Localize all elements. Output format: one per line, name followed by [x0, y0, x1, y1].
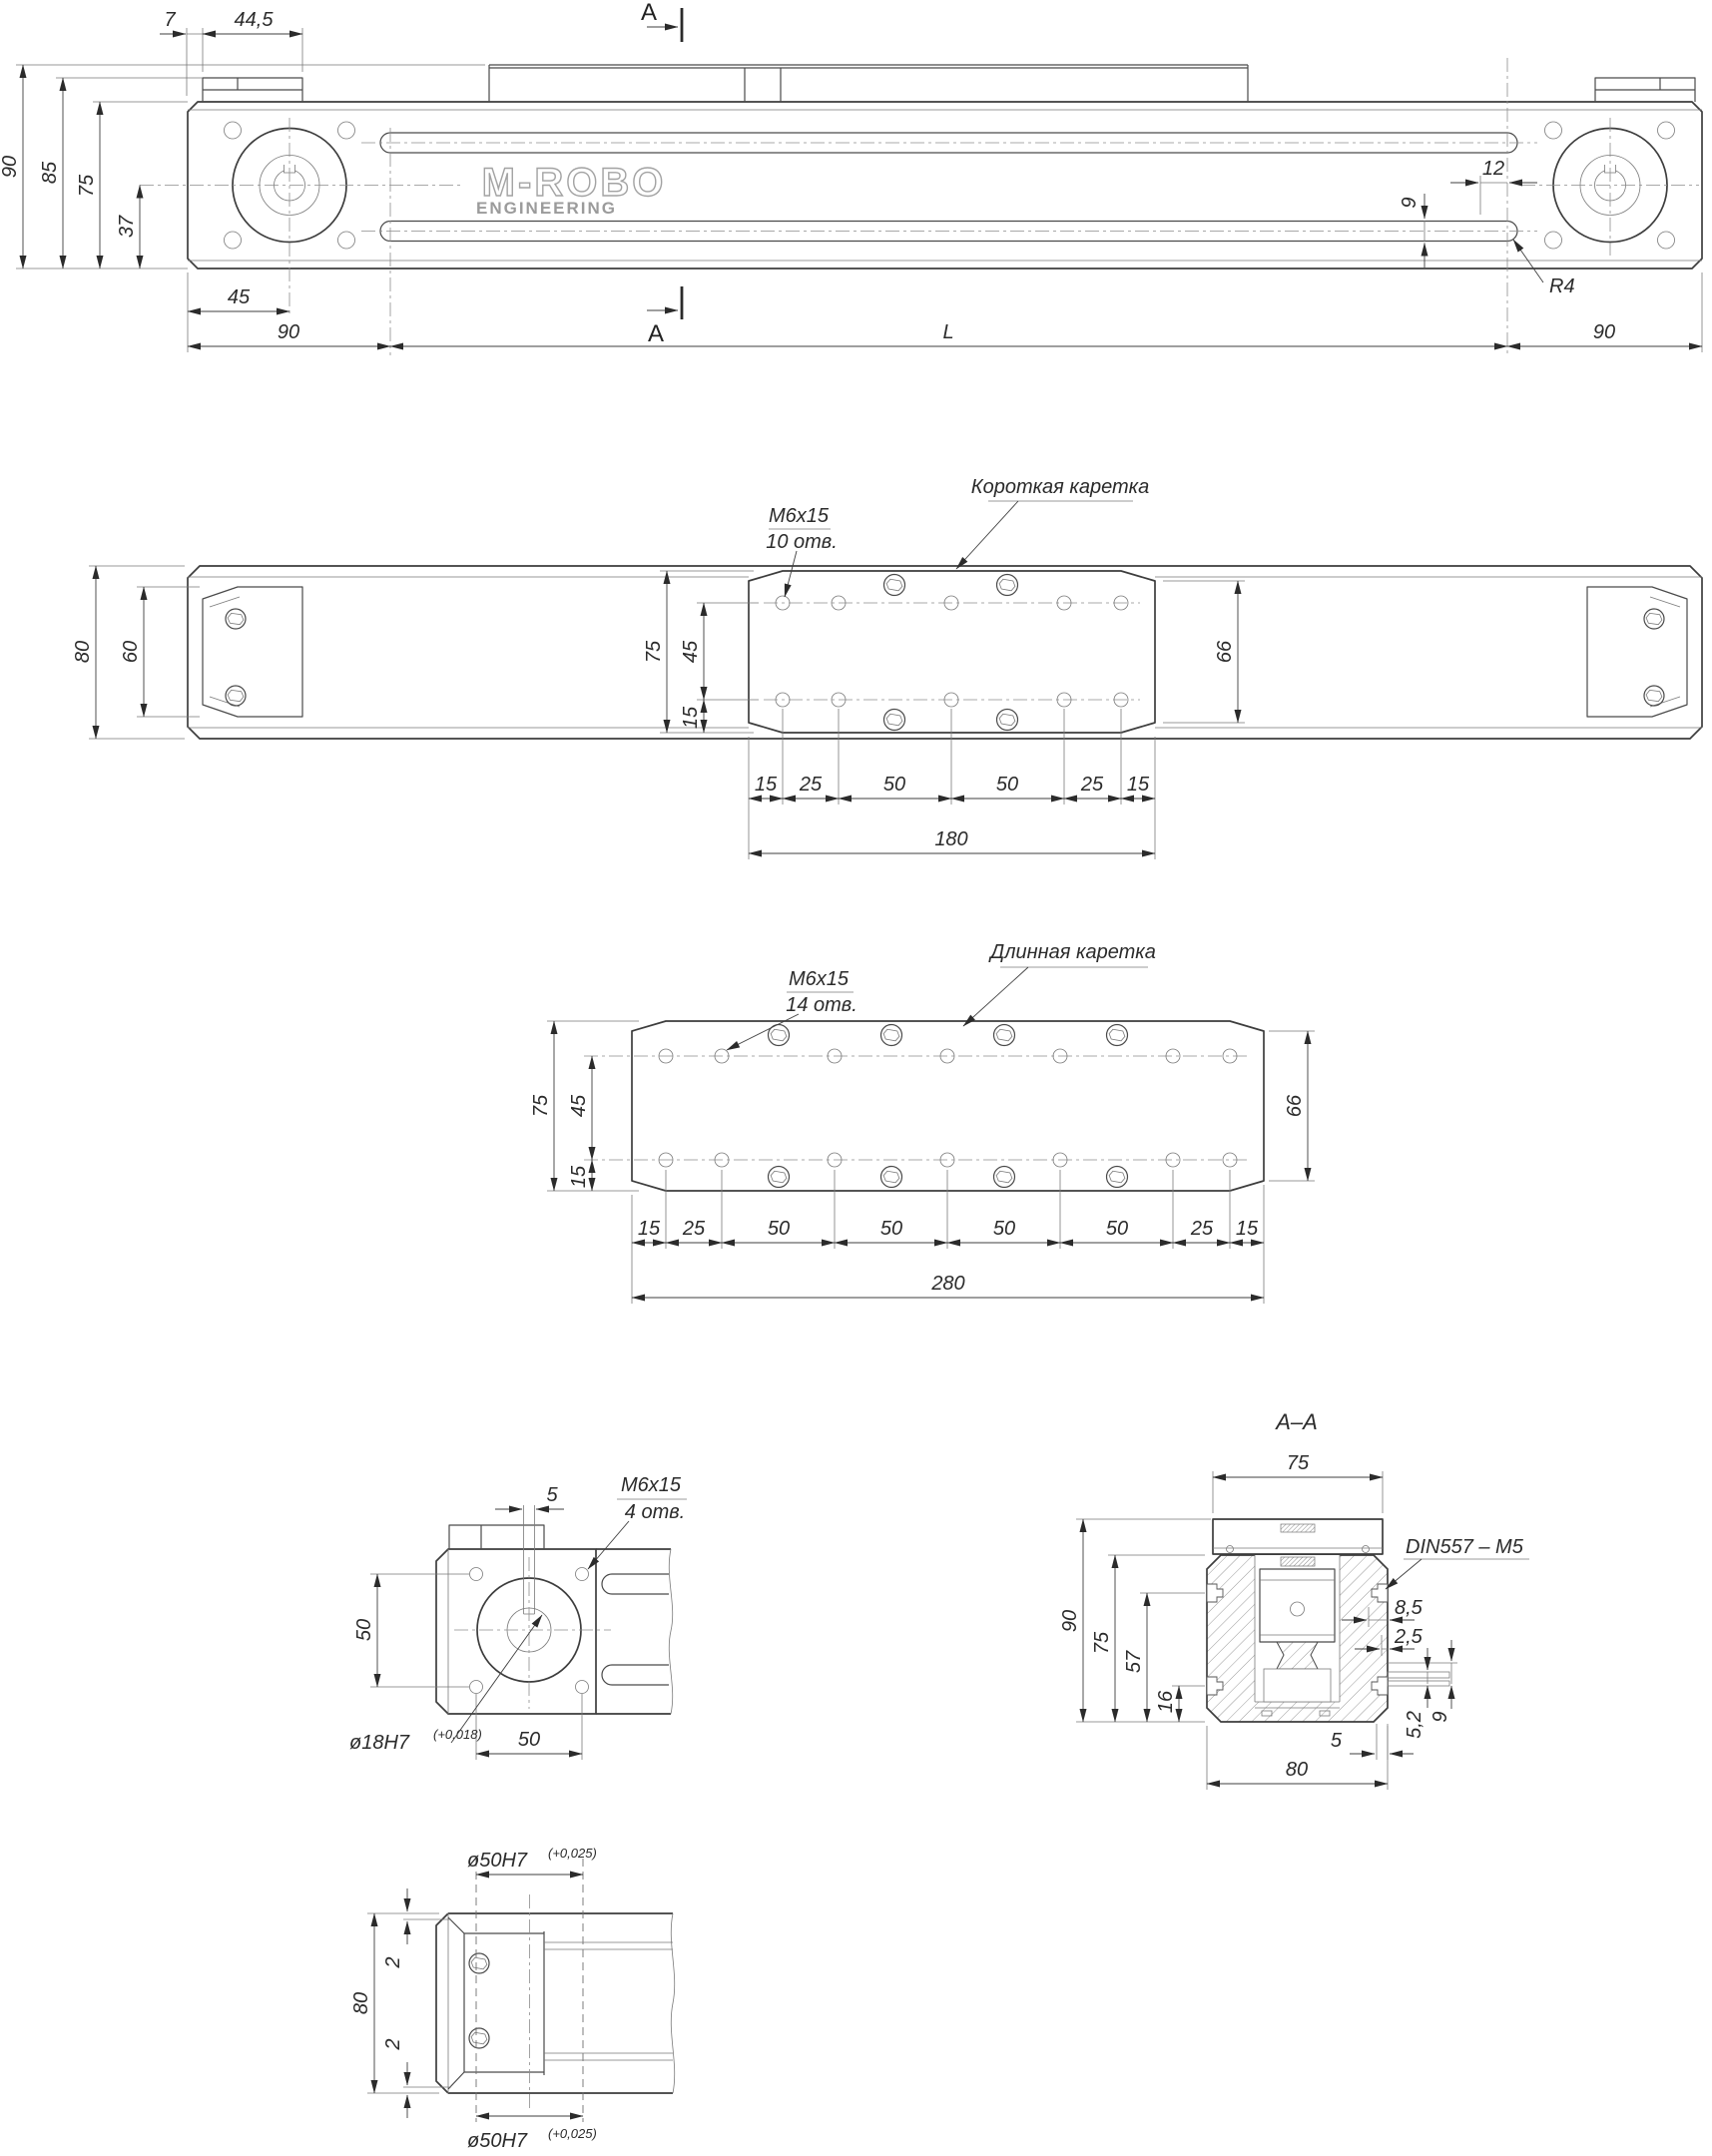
dim-90-left: 90: [278, 321, 299, 343]
dim-45: 45: [680, 640, 702, 663]
dim-44-5: 44,5: [235, 9, 275, 31]
dim-57: 57: [1123, 1650, 1145, 1673]
note-thread: M6x15: [621, 1474, 682, 1496]
note-thread: M6x15: [769, 505, 830, 527]
dim-2-top: 2: [382, 1956, 404, 1968]
dim-5: 5: [546, 1484, 558, 1506]
dim-45: 45: [568, 1094, 590, 1117]
dim-r4: R4: [1549, 275, 1575, 297]
motor-end-view: 50 50 5 M6x15 4 отв. ø18H7 (+0,018): [349, 1474, 687, 1760]
note-holes: 10 отв.: [766, 531, 838, 553]
dim-45: 45: [228, 286, 251, 308]
section-internals: [1255, 1569, 1340, 1716]
dim-12: 12: [1482, 158, 1504, 180]
right-flange: [1521, 118, 1699, 256]
dim-2-5: 2,5: [1394, 1626, 1424, 1648]
plan-carriage-label: Короткая каретка: [956, 476, 1149, 569]
right-end-block: [1595, 78, 1695, 102]
dim-80: 80: [350, 1992, 372, 2014]
dim-row-50: 50: [768, 1218, 790, 1240]
dim-80: 80: [72, 641, 94, 663]
dim-50-vertical: 50: [353, 1619, 375, 1641]
bore-tolerance-bottom: (+0,025): [548, 2126, 597, 2141]
bore-body: [436, 1913, 673, 2093]
dim-5: 5: [1331, 1730, 1343, 1752]
dim-row-50b: 50: [880, 1218, 902, 1240]
dim-90: 90: [0, 156, 21, 178]
bore-dims: 80 2 2 ø50H7 (+0,025) ø50H7 (+0,025): [350, 1846, 597, 2152]
din-label: DIN557 – M5: [1386, 1536, 1529, 1589]
dim-row-15: 15: [638, 1218, 661, 1240]
dim-66: 66: [1214, 640, 1236, 663]
dim-75-top: 75: [1287, 1452, 1310, 1474]
dim-280: 280: [930, 1273, 964, 1295]
dim-16: 16: [1155, 1690, 1177, 1713]
note-holes: 4 отв.: [625, 1501, 685, 1523]
dim-7: 7: [164, 9, 176, 31]
side-dims-slot: 12 9 R4: [1399, 158, 1575, 297]
bore-tolerance-top: (+0,025): [548, 1846, 597, 1861]
belt-lines: [544, 1942, 673, 2060]
dim-row-15b: 15: [1127, 774, 1150, 796]
section-title: A–A: [1274, 1409, 1318, 1434]
left-end-cap: [203, 587, 302, 717]
dim-row-25: 25: [682, 1218, 706, 1240]
break-line: [671, 1913, 674, 2093]
note-thread: M6x15: [789, 968, 850, 990]
dim-37: 37: [116, 215, 138, 238]
dim-row-50b: 50: [996, 774, 1018, 796]
dim-row-25: 25: [799, 774, 823, 796]
dim-5-2: 5,2: [1404, 1711, 1426, 1739]
long-carriage-label: Длинная каретка: [963, 941, 1156, 1026]
section-letter: A: [641, 0, 657, 26]
dim-75: 75: [530, 1094, 552, 1117]
side-view: M-ROBO ENGINEERING A A 7 44,5 90 85 75 3…: [0, 0, 1702, 355]
bore-callout: ø18H7: [349, 1732, 410, 1754]
dim-row-25b: 25: [1080, 774, 1104, 796]
dim-66: 66: [1284, 1094, 1306, 1117]
carriage-name: Короткая каретка: [971, 476, 1149, 498]
dim-60: 60: [120, 641, 142, 663]
dim-85: 85: [39, 161, 61, 184]
belt-exit: [1388, 1663, 1457, 1686]
dim-75: 75: [643, 640, 665, 663]
section-letter: A: [648, 320, 664, 347]
din-note: DIN557 – M5: [1406, 1536, 1524, 1558]
note-holes: 14 отв.: [786, 994, 857, 1016]
motor-top-block: [449, 1525, 544, 1549]
dim-180: 180: [934, 828, 967, 850]
section-view: A–A DIN557 – M5: [1059, 1409, 1529, 1790]
bore-callout-top: ø50H7: [467, 1850, 528, 1872]
side-dims-bottom: 45 90 L 90: [188, 272, 1702, 352]
carriage-side: [489, 65, 1248, 102]
dim-90-right: 90: [1593, 321, 1615, 343]
dim-75: 75: [1091, 1631, 1113, 1654]
dim-90: 90: [1059, 1610, 1081, 1632]
section-mark-top: A: [641, 0, 682, 42]
drawing-sheet: M-ROBO ENGINEERING A A 7 44,5 90 85 75 3…: [0, 0, 1712, 2156]
dim-2-bottom: 2: [382, 2038, 404, 2050]
dim-8-5: 8,5: [1395, 1597, 1424, 1619]
plan-view: M6x15 10 отв. Короткая каретка 80 60 75 …: [72, 476, 1702, 859]
short-carriage: [749, 571, 1155, 733]
cad-drawing: M-ROBO ENGINEERING A A 7 44,5 90 85 75 3…: [0, 0, 1712, 2156]
right-end-cap: [1587, 587, 1687, 717]
bore-view: 80 2 2 ø50H7 (+0,025) ø50H7 (+0,025): [350, 1846, 675, 2152]
dim-row-15b: 15: [1236, 1218, 1259, 1240]
dim-row-50d: 50: [1106, 1218, 1128, 1240]
side-dims-left: 90 85 75 37: [0, 65, 485, 269]
side-dims-top: 7 44,5: [160, 9, 302, 96]
dim-row-15: 15: [755, 774, 778, 796]
dim-50-horizontal: 50: [518, 1729, 540, 1751]
dim-row-50c: 50: [993, 1218, 1015, 1240]
rail-stub-slots: [602, 1574, 669, 1685]
left-end-block: [203, 78, 302, 102]
motor-note-m6: M6x15 4 отв.: [588, 1474, 687, 1569]
carriage-name: Длинная каретка: [988, 941, 1156, 963]
dim-15: 15: [568, 1165, 590, 1188]
dim-75: 75: [76, 174, 98, 197]
section-mark-bottom: A: [647, 286, 682, 347]
dim-15: 15: [680, 706, 702, 729]
dim-row-50: 50: [883, 774, 905, 796]
bore-callout-bottom: ø50H7: [467, 2130, 528, 2152]
motor-bore-label: ø18H7 (+0,018): [349, 1615, 542, 1754]
brand-sublogo: ENGINEERING: [476, 199, 617, 218]
dim-L: L: [942, 321, 953, 343]
dim-9: 9: [1399, 197, 1421, 208]
dim-80: 80: [1286, 1759, 1308, 1781]
break-line: [669, 1549, 672, 1714]
long-carriage-view: M6x15 14 отв. Длинная каретка 75 45 15 6…: [530, 941, 1315, 1304]
dim-row-25b: 25: [1190, 1218, 1214, 1240]
dim-9: 9: [1429, 1711, 1451, 1722]
